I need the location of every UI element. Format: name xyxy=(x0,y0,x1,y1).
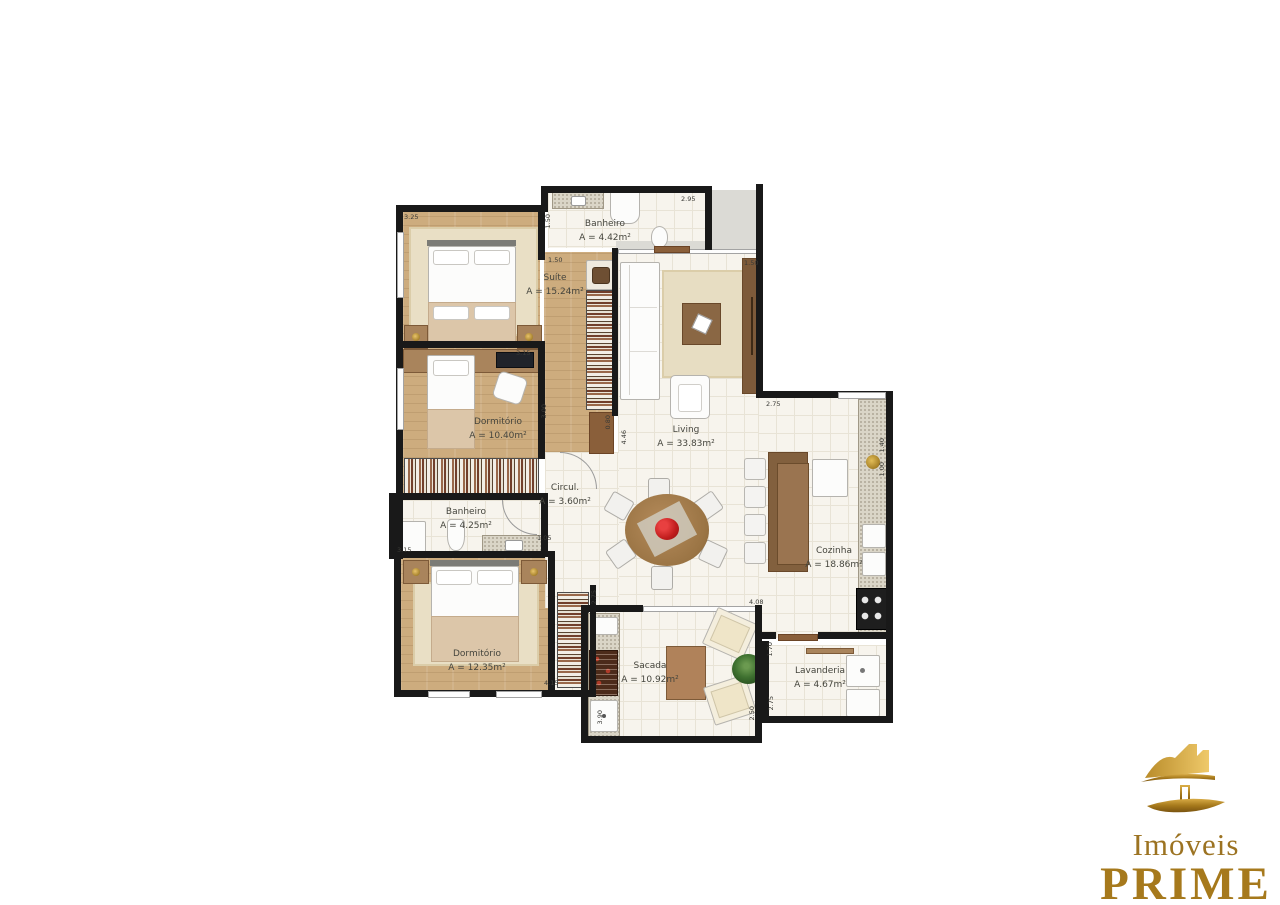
dining-table xyxy=(625,494,709,566)
dorm2-nightstand-left xyxy=(403,560,429,584)
room-area: A = 33.83m² xyxy=(657,439,715,449)
dimension-label: 1.00 xyxy=(878,462,886,476)
nightstand-knob xyxy=(412,333,420,341)
floorplan-page: Suíte A = 15.24m² Banheiro A = 4.42m² Do… xyxy=(0,0,1280,905)
suite-bed xyxy=(427,240,516,340)
stove-icon xyxy=(856,588,888,630)
dimension-label: 1.50 xyxy=(544,214,552,228)
sofa-seat-line xyxy=(629,265,658,395)
armchair-seat xyxy=(678,384,702,412)
logo-prime-text: PRIME xyxy=(1093,863,1279,905)
room-label-dormitorio2: Dormitório A = 12.35m² xyxy=(435,648,519,676)
room-label-sacada: Sacada A = 10.92m² xyxy=(608,660,692,688)
room-name: Banheiro xyxy=(563,218,647,232)
dorm2-bed xyxy=(430,560,519,660)
dimension-label: 2.95 xyxy=(681,195,695,203)
room-name: Living xyxy=(644,424,728,438)
nightstand-knob xyxy=(530,568,538,576)
dimension-label: 1.50 xyxy=(744,259,758,267)
nightstand-knob xyxy=(412,568,420,576)
coffee-table xyxy=(682,303,721,345)
wall xyxy=(581,605,588,743)
flower-centerpiece xyxy=(655,518,679,540)
room-name: Sacada xyxy=(608,660,692,674)
room-name: Dormitório xyxy=(456,416,540,430)
dorm2-nightstand-right xyxy=(521,560,547,584)
dorm2-pillow-left xyxy=(436,570,472,585)
nightstand-knob xyxy=(525,333,533,341)
dimension-label: 4.15 xyxy=(544,679,558,687)
wall xyxy=(389,495,396,559)
kitchen-window xyxy=(838,392,886,399)
wall xyxy=(394,551,401,697)
wall xyxy=(548,551,555,697)
sink-icon xyxy=(571,196,586,206)
room-label-lavanderia: Lavanderia A = 4.67m² xyxy=(778,665,862,693)
room-label-cozinha: Cozinha A = 18.86m² xyxy=(792,545,876,573)
wall xyxy=(705,186,712,250)
fridge xyxy=(812,459,848,497)
suite-window xyxy=(397,232,404,298)
lavanderia-shelf xyxy=(806,648,854,654)
wall xyxy=(755,605,762,743)
banheiro-suite-door xyxy=(654,246,690,253)
room-name: Suíte xyxy=(513,272,597,286)
wall xyxy=(394,690,596,697)
sacada-sliding-door xyxy=(643,606,757,612)
imoveis-prime-logo: Imóveis PRIME Investimentos Imobiliários xyxy=(1093,742,1279,905)
wall xyxy=(762,632,776,639)
room-label-banheiro-social: Banheiro A = 4.25m² xyxy=(424,506,508,534)
dimension-label: 1.70 xyxy=(766,642,774,656)
tv-panel-handle xyxy=(751,297,753,355)
room-label-living: Living A = 33.83m² xyxy=(644,424,728,452)
room-area: A = 18.86m² xyxy=(805,560,863,570)
suite-fold-left xyxy=(433,306,469,320)
dimension-label: 2.50 xyxy=(748,706,756,720)
sacada-sink xyxy=(590,700,618,732)
dimension-label: 4.08 xyxy=(749,598,763,606)
bar-stool xyxy=(744,486,766,508)
room-area: A = 12.35m² xyxy=(448,663,506,673)
room-label-suite: Suíte A = 15.24m² xyxy=(513,272,597,300)
dimension-label: 3.25 xyxy=(404,213,418,221)
dimension-label: 2.75 xyxy=(590,590,598,604)
laundry-tank xyxy=(846,689,880,717)
room-name: Cozinha xyxy=(792,545,876,559)
room-name: Banheiro xyxy=(424,506,508,520)
wall xyxy=(756,716,893,723)
dimension-label: 1.40 xyxy=(878,438,886,452)
dimension-label: 4.46 xyxy=(620,430,628,444)
bar-stool xyxy=(744,514,766,536)
wall xyxy=(396,205,545,212)
room-area: A = 4.67m² xyxy=(794,680,846,690)
room-area: A = 10.40m² xyxy=(469,431,527,441)
dorm2-pillow-right xyxy=(477,570,513,585)
banheiro-suite-vanity xyxy=(552,192,604,209)
wall xyxy=(818,632,893,639)
lavanderia-door xyxy=(778,634,818,641)
living-sofa xyxy=(620,262,660,400)
room-name: Dormitório xyxy=(435,648,519,662)
wall xyxy=(612,248,618,416)
logo-base-swoosh xyxy=(1147,799,1225,812)
dorm2-door-opening xyxy=(496,691,542,698)
room-area: A = 4.42m² xyxy=(579,233,631,243)
room-label-dormitorio1: Dormitório A = 10.40m² xyxy=(456,416,540,444)
table-decor xyxy=(691,313,712,334)
room-area: A = 15.24m² xyxy=(526,287,584,297)
bar-stool xyxy=(744,458,766,480)
dorm1-wardrobe-rack xyxy=(404,458,539,494)
dimension-label: 3.00 xyxy=(540,404,548,418)
suite-fold-right xyxy=(474,306,510,320)
dimension-label: 1.05 xyxy=(537,534,551,542)
wall xyxy=(581,736,762,743)
bar-stool xyxy=(744,542,766,564)
wall xyxy=(389,493,545,500)
wall xyxy=(541,186,712,193)
room-label-banheiro-suite: Banheiro A = 4.42m² xyxy=(563,218,647,246)
dorm2-window xyxy=(428,691,470,698)
wall xyxy=(396,341,545,348)
wall xyxy=(886,391,893,723)
room-area: A = 10.92m² xyxy=(621,675,679,685)
dorm1-window xyxy=(397,368,404,430)
dimension-label: 3.90 xyxy=(596,710,604,724)
suite-pillow-right xyxy=(474,250,510,265)
wall xyxy=(389,551,545,558)
living-armchair xyxy=(670,375,710,419)
dimension-label: 2.75 xyxy=(766,400,780,408)
dining-chair xyxy=(651,566,673,590)
dimension-label: 2.75 xyxy=(767,696,775,710)
sink-icon xyxy=(505,540,523,551)
dimension-label: 3.15 xyxy=(397,546,411,554)
dimension-label: 3.15 xyxy=(516,349,530,357)
dorm1-pillow xyxy=(433,360,469,376)
room-label-circulacao: Circul. A = 3.60m² xyxy=(523,482,607,510)
logo-house-icon xyxy=(1131,742,1241,820)
suite-closet-rack xyxy=(586,290,614,410)
room-area: A = 4.25m² xyxy=(440,521,492,531)
room-name: Circul. xyxy=(523,482,607,496)
dimension-label: 0.80 xyxy=(604,415,612,429)
wall xyxy=(756,184,763,397)
dimension-label: 1.50 xyxy=(548,256,562,264)
room-area: A = 3.60m² xyxy=(539,497,591,507)
banheiro-suite-toilet xyxy=(651,226,668,248)
logo-roof-shape xyxy=(1145,744,1209,778)
suite-pillow-left xyxy=(433,250,469,265)
room-name: Lavanderia xyxy=(778,665,862,679)
